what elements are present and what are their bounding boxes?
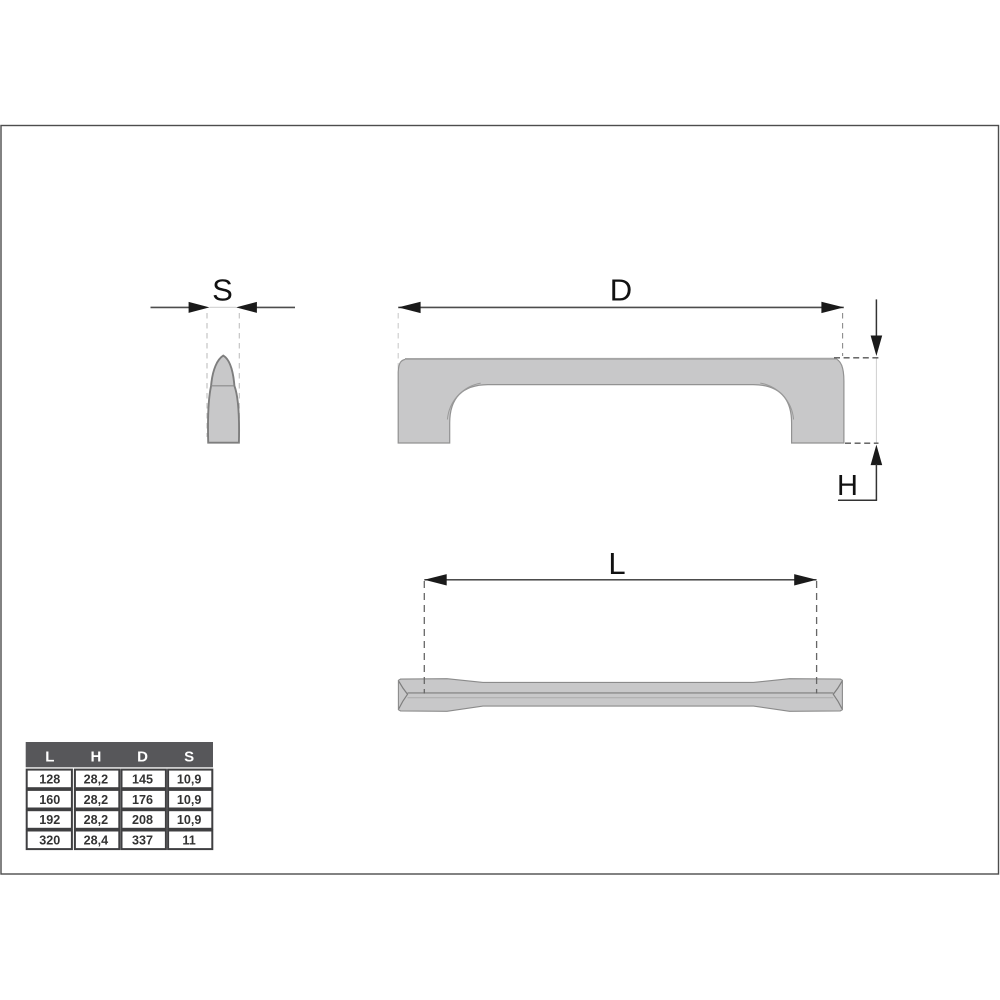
svg-text:28,2: 28,2 — [84, 773, 109, 787]
svg-text:D: D — [610, 273, 632, 308]
svg-text:S: S — [212, 273, 233, 308]
svg-text:320: 320 — [39, 834, 60, 848]
svg-text:28,2: 28,2 — [84, 793, 109, 807]
svg-text:28,2: 28,2 — [84, 813, 109, 827]
svg-text:S: S — [184, 749, 194, 766]
svg-text:128: 128 — [39, 773, 60, 787]
svg-text:11: 11 — [182, 834, 195, 848]
svg-text:145: 145 — [132, 773, 153, 787]
svg-text:H: H — [90, 749, 101, 766]
svg-text:L: L — [45, 749, 54, 766]
svg-text:176: 176 — [132, 793, 153, 807]
svg-text:192: 192 — [39, 813, 60, 827]
svg-text:L: L — [608, 546, 625, 581]
svg-text:337: 337 — [132, 834, 153, 848]
svg-text:H: H — [837, 470, 858, 502]
svg-text:28,4: 28,4 — [84, 834, 109, 848]
svg-text:10,9: 10,9 — [177, 793, 202, 807]
svg-text:160: 160 — [39, 793, 60, 807]
svg-text:D: D — [137, 749, 148, 766]
svg-text:10,9: 10,9 — [177, 773, 202, 787]
svg-text:208: 208 — [132, 813, 153, 827]
svg-text:10,9: 10,9 — [177, 813, 202, 827]
